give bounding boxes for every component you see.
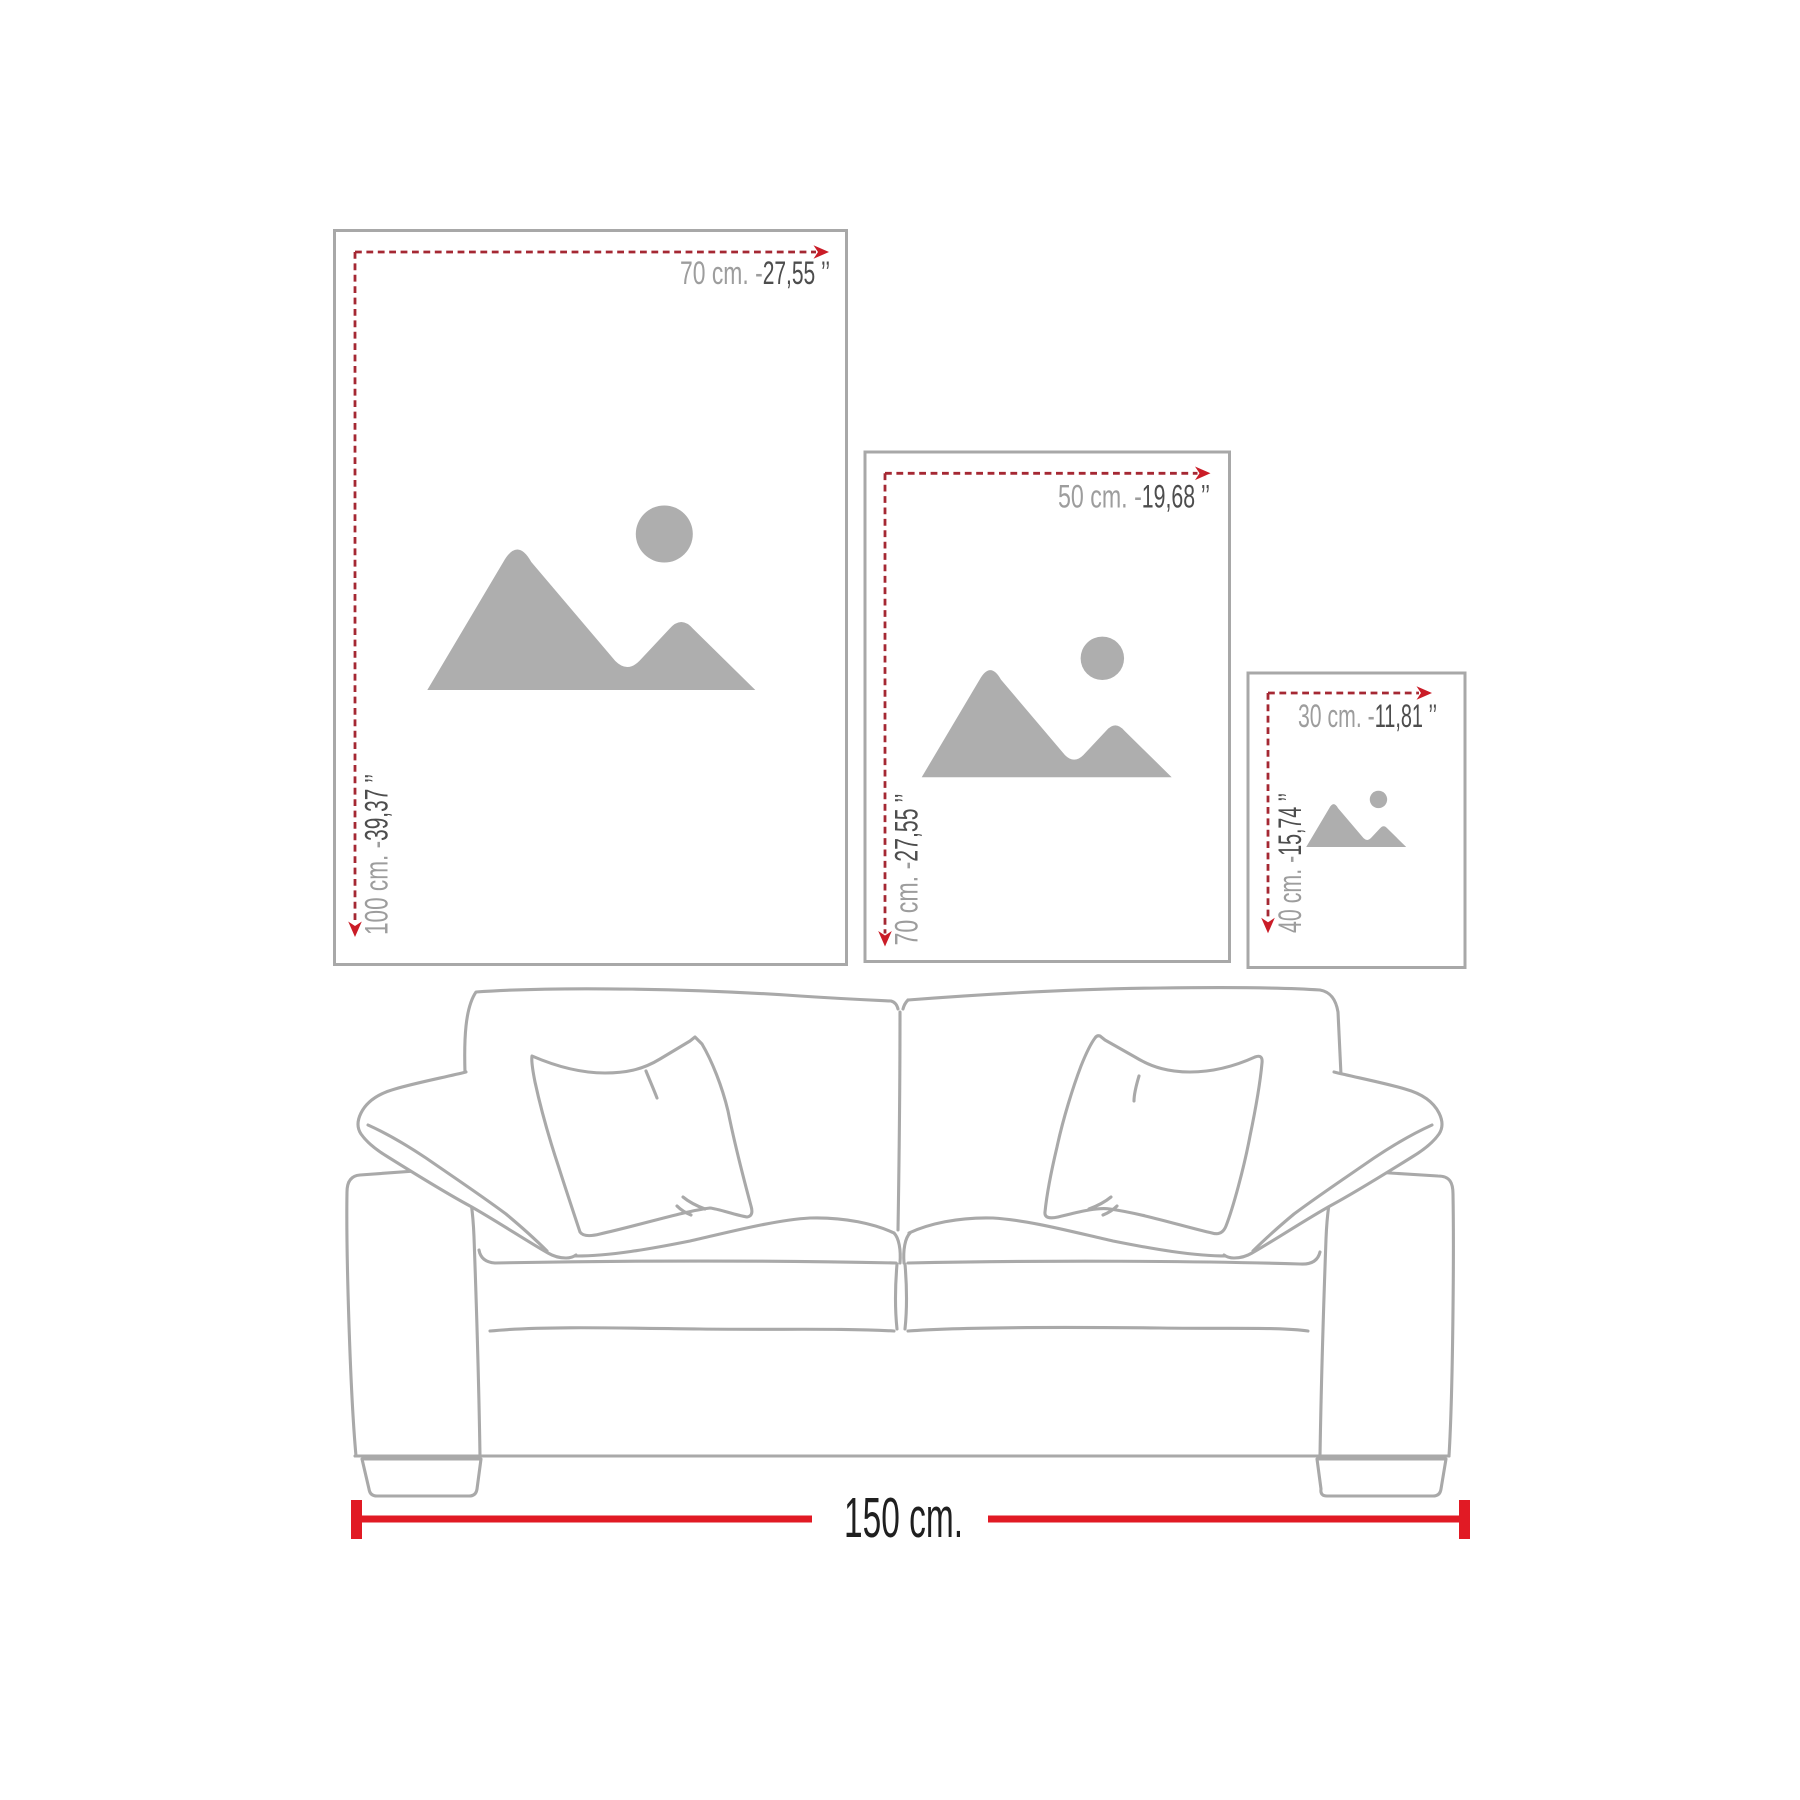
svg-text:11,81 ’’: 11,81 ’’ xyxy=(1375,698,1437,734)
svg-text:100 cm. -: 100 cm. - xyxy=(359,841,395,935)
svg-text:30 cm. -: 30 cm. - xyxy=(1298,698,1375,734)
svg-text:70 cm. -: 70 cm. - xyxy=(680,255,763,291)
svg-text:70 cm. -: 70 cm. - xyxy=(889,862,925,946)
svg-text:27,55 ’’: 27,55 ’’ xyxy=(889,794,925,862)
svg-text:39,37 ’’: 39,37 ’’ xyxy=(359,774,395,841)
svg-text:15,74 ’’: 15,74 ’’ xyxy=(1272,793,1308,856)
svg-text:150 cm.: 150 cm. xyxy=(844,1486,963,1550)
svg-text:40 cm. -: 40 cm. - xyxy=(1272,856,1308,933)
svg-text:50 cm. -: 50 cm. - xyxy=(1058,479,1142,515)
svg-text:19,68 ’’: 19,68 ’’ xyxy=(1142,479,1210,515)
svg-text:27,55 ’’: 27,55 ’’ xyxy=(763,255,830,291)
